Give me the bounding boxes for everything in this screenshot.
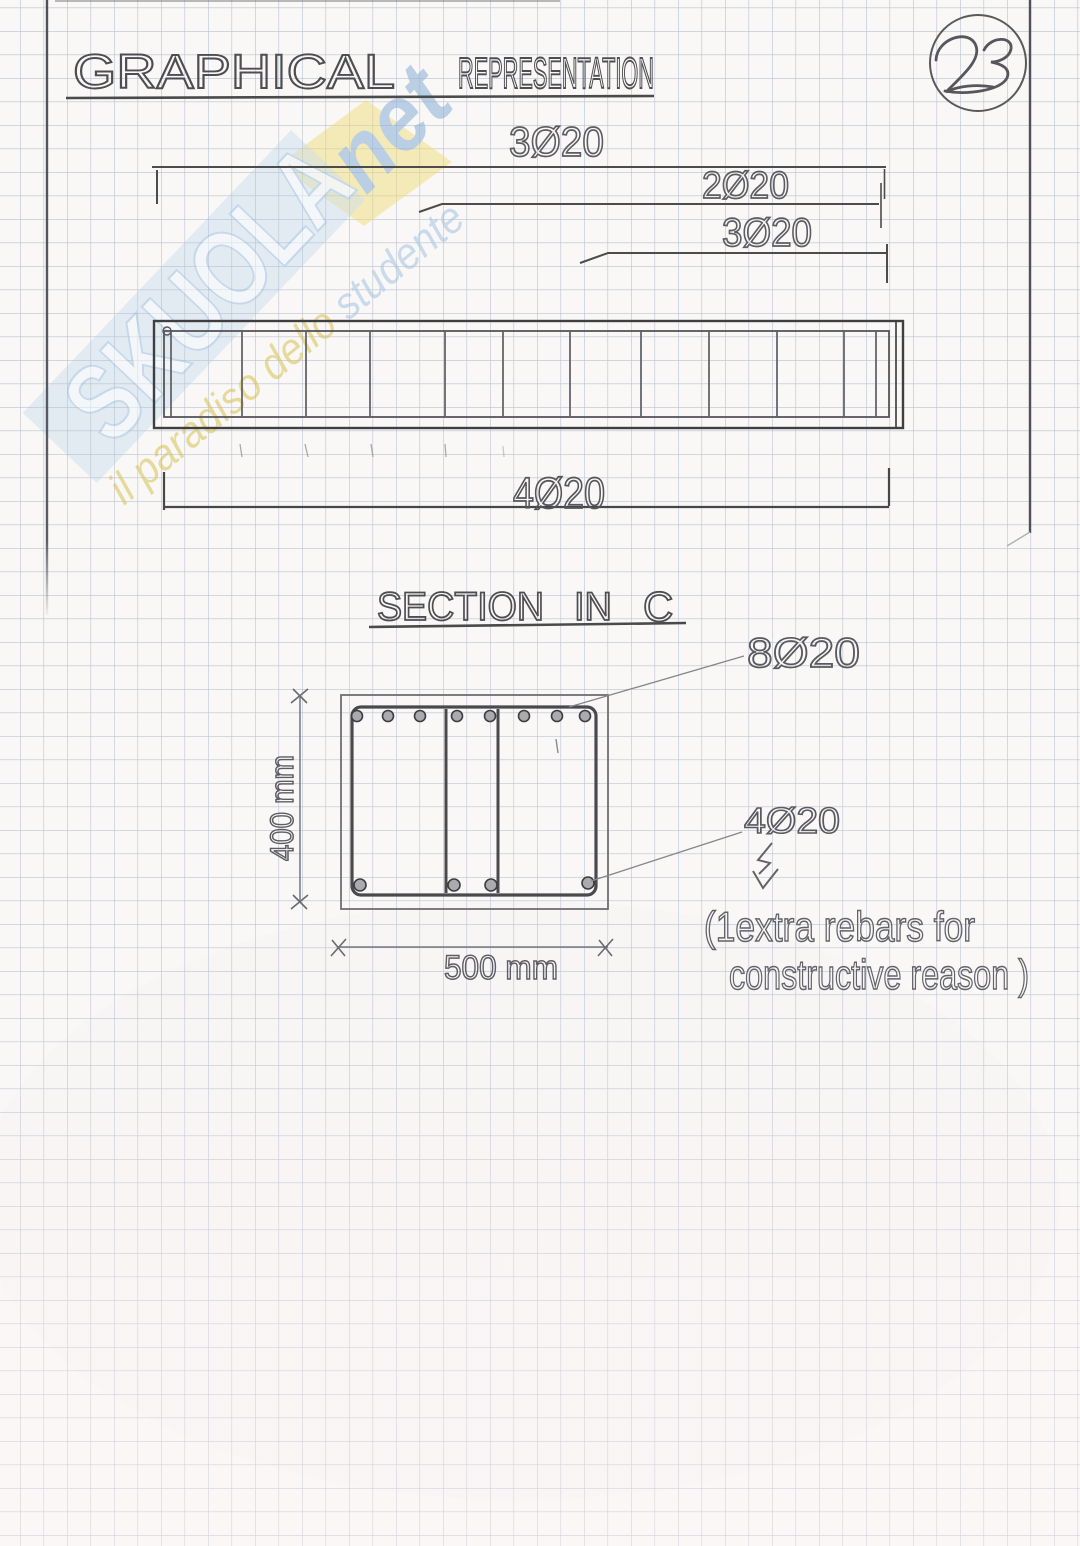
svg-text:8Ø20: 8Ø20 [747,629,860,676]
svg-text:IN: IN [574,585,612,629]
svg-text:2Ø20: 2Ø20 [702,165,789,207]
svg-text:4Ø20: 4Ø20 [513,469,605,518]
svg-text:4Ø20: 4Ø20 [744,800,840,841]
svg-text:constructive reason ): constructive reason ) [729,951,1029,998]
svg-text:SECTION: SECTION [377,585,544,629]
svg-text:3Ø20: 3Ø20 [509,118,604,165]
svg-text:400 mm: 400 mm [264,755,300,861]
svg-text:500 mm: 500 mm [444,949,558,987]
svg-text:(1extra rebars for: (1extra rebars for [704,903,975,950]
svg-text:GRAPHICAL: GRAPHICAL [73,46,395,99]
svg-text:3Ø20: 3Ø20 [722,211,812,255]
svg-text:REPRESENTATION: REPRESENTATION [458,49,654,98]
